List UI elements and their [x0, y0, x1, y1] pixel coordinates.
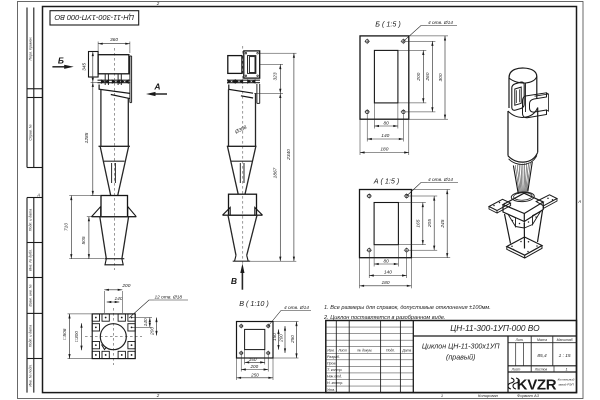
svg-text:Подп. и дата: Подп. и дата [29, 325, 33, 348]
svg-text:Изм.: Изм. [327, 349, 334, 353]
svg-text:80: 80 [384, 258, 390, 264]
svg-text:140: 140 [384, 270, 392, 276]
svg-text:1: 1 [565, 368, 567, 372]
svg-text:Масштаб: Масштаб [557, 338, 573, 342]
svg-text:80: 80 [384, 120, 390, 126]
svg-text:Листов: Листов [534, 368, 548, 372]
svg-text:Б ( 1:5 ): Б ( 1:5 ) [375, 20, 400, 29]
svg-text:180: 180 [381, 280, 389, 286]
svg-text:150: 150 [249, 357, 257, 362]
svg-text:(правый): (правый) [446, 354, 475, 362]
svg-text:140: 140 [114, 296, 122, 302]
svg-text:Н. контр.: Н. контр. [327, 381, 343, 385]
svg-text:360: 360 [110, 37, 118, 43]
svg-text:200: 200 [416, 72, 422, 81]
svg-text:Т. контр.: Т. контр. [327, 368, 343, 372]
svg-text:323: 323 [273, 72, 279, 80]
svg-text:Инв. № подл.: Инв. № подл. [29, 364, 33, 386]
svg-text:В ( 1:10 ): В ( 1:10 ) [239, 299, 269, 308]
svg-text:Подп.: Подп. [386, 349, 395, 353]
svg-text:1867: 1867 [273, 167, 279, 178]
svg-text:ЦН-11-300-1УП-000 ВО: ЦН-11-300-1УП-000 ВО [54, 13, 134, 22]
svg-text:1 : 15: 1 : 15 [559, 353, 571, 359]
svg-text:505: 505 [81, 236, 87, 244]
svg-text:205: 205 [427, 219, 433, 228]
svg-text:200: 200 [249, 364, 258, 369]
svg-text:завод РЭП: завод РЭП [557, 383, 574, 387]
svg-text:ЦН-11-300-1УП-000 ВО: ЦН-11-300-1УП-000 ВО [450, 323, 540, 333]
svg-text:№ докум.: № докум. [357, 349, 372, 353]
svg-text:2: 2 [156, 1, 160, 6]
svg-text:Копировал: Копировал [478, 393, 499, 398]
svg-text:Лит.: Лит. [515, 338, 524, 342]
svg-text:□300: □300 [74, 331, 80, 342]
svg-text:Разраб.: Разраб. [327, 355, 340, 359]
svg-text:Пров.: Пров. [327, 362, 336, 366]
svg-text:140: 140 [143, 318, 149, 326]
svg-text:Утв.: Утв. [327, 388, 335, 392]
svg-text:1285: 1285 [84, 132, 90, 143]
svg-text:250: 250 [250, 372, 259, 377]
svg-text:Лист: Лист [511, 368, 521, 372]
svg-text:180: 180 [380, 147, 388, 153]
svg-text:А: А [36, 193, 40, 198]
svg-text:Котельный: Котельный [558, 378, 575, 382]
svg-text:А: А [577, 199, 581, 204]
svg-text:300: 300 [438, 73, 444, 81]
svg-text:Циклон ЦН-11-300х1УП: Циклон ЦН-11-300х1УП [422, 343, 501, 351]
svg-text:Масса: Масса [537, 338, 547, 342]
svg-text:345: 345 [81, 63, 87, 71]
svg-text:250: 250 [290, 335, 295, 344]
svg-text:Инв. № дубл.: Инв. № дубл. [29, 249, 33, 271]
svg-text:710: 710 [64, 223, 70, 231]
svg-text:А: А [153, 82, 160, 92]
svg-text:Взам. инв. №: Взам. инв. № [29, 284, 33, 306]
svg-text:Подп. и дата: Подп. и дата [29, 209, 33, 232]
svg-text:85,4: 85,4 [537, 353, 547, 359]
svg-text:Формат А3: Формат А3 [517, 393, 540, 398]
svg-text:А ( 1:5 ): А ( 1:5 ) [373, 177, 400, 186]
svg-text:165: 165 [415, 219, 421, 227]
svg-text:Нач.отд.: Нач.отд. [327, 375, 342, 379]
svg-text:200: 200 [121, 283, 130, 289]
svg-text:2: 2 [156, 393, 160, 398]
svg-text:200: 200 [278, 334, 283, 343]
svg-text:140: 140 [381, 133, 389, 139]
svg-text:Б: Б [58, 56, 64, 66]
svg-text:□506: □506 [62, 328, 68, 339]
svg-text:2340: 2340 [286, 149, 292, 161]
svg-text:Перв. примен.: Перв. примен. [29, 37, 33, 61]
svg-text:200: 200 [150, 327, 156, 336]
svg-text:150: 150 [272, 333, 277, 341]
svg-text:1: 1 [441, 393, 443, 398]
svg-text:В: В [231, 276, 237, 286]
svg-text:1. Все размеры для справок, до: 1. Все размеры для справок, допустимые о… [324, 305, 491, 311]
svg-text:KVZR: KVZR [517, 377, 557, 394]
svg-text:Справ. №: Справ. № [29, 124, 33, 140]
svg-text:Лист: Лист [337, 349, 347, 353]
svg-text:260: 260 [425, 72, 431, 81]
svg-text:245: 245 [440, 219, 446, 228]
svg-text:Дата: Дата [401, 349, 411, 353]
